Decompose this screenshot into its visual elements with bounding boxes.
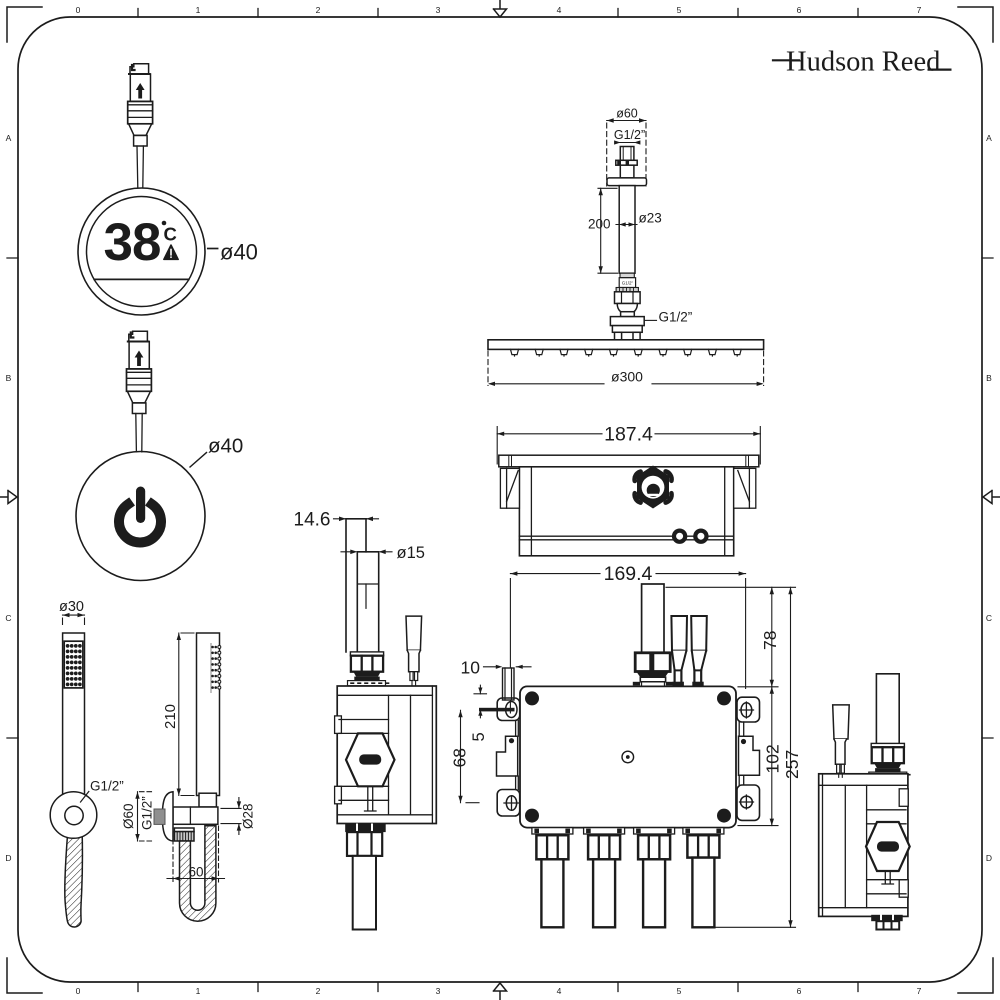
svg-text:C: C <box>986 613 992 623</box>
svg-text:G1/2”: G1/2” <box>614 128 645 142</box>
svg-text:G1/2": G1/2" <box>622 281 634 286</box>
svg-text:C: C <box>164 223 177 244</box>
svg-text:169.4: 169.4 <box>604 563 653 585</box>
svg-text:ø300: ø300 <box>611 369 643 385</box>
svg-text:78: 78 <box>760 631 780 650</box>
svg-text:102: 102 <box>763 744 783 773</box>
svg-text:B: B <box>986 373 992 383</box>
svg-text:200: 200 <box>588 217 611 232</box>
svg-text:5: 5 <box>677 986 682 996</box>
svg-text:257: 257 <box>782 750 802 779</box>
svg-text:G1/2”: G1/2” <box>140 796 155 830</box>
svg-text:5: 5 <box>677 5 682 15</box>
svg-text:68: 68 <box>450 748 470 767</box>
svg-text:ø15: ø15 <box>397 544 425 562</box>
svg-text:7: 7 <box>917 986 922 996</box>
svg-text:2: 2 <box>316 5 321 15</box>
svg-text:B: B <box>6 373 12 383</box>
svg-text:6: 6 <box>797 5 802 15</box>
svg-text:4: 4 <box>557 5 562 15</box>
svg-text:14.6: 14.6 <box>294 510 331 531</box>
svg-text:0: 0 <box>76 986 81 996</box>
svg-text:ø40: ø40 <box>220 240 258 265</box>
svg-text:3: 3 <box>436 5 441 15</box>
svg-text:ø60: ø60 <box>616 107 638 121</box>
svg-text:60: 60 <box>188 865 203 880</box>
svg-text:Ø28: Ø28 <box>241 803 256 829</box>
svg-text:1: 1 <box>196 5 201 15</box>
svg-text:10: 10 <box>461 658 481 678</box>
svg-text:210: 210 <box>162 704 179 729</box>
svg-text:6: 6 <box>797 986 802 996</box>
svg-text:G1/2”: G1/2” <box>659 310 693 325</box>
svg-text:ø23: ø23 <box>639 211 662 226</box>
svg-text:ø30: ø30 <box>59 599 84 615</box>
svg-text:ø40: ø40 <box>208 435 243 458</box>
svg-text:38: 38 <box>104 213 161 272</box>
svg-text:A: A <box>6 133 12 143</box>
svg-text:D: D <box>5 853 11 863</box>
svg-text:2: 2 <box>316 986 321 996</box>
svg-text:Hudson Reed: Hudson Reed <box>786 47 940 78</box>
svg-text:3: 3 <box>436 986 441 996</box>
svg-text:C: C <box>5 613 11 623</box>
svg-text:A: A <box>986 133 992 143</box>
svg-text:0: 0 <box>76 5 81 15</box>
svg-text:5: 5 <box>470 732 488 741</box>
svg-text:D: D <box>986 853 992 863</box>
svg-text:1: 1 <box>196 986 201 996</box>
svg-text:G1/2”: G1/2” <box>90 779 124 794</box>
svg-text:187.4: 187.4 <box>604 424 653 446</box>
svg-text:4: 4 <box>557 986 562 996</box>
svg-text:7: 7 <box>917 5 922 15</box>
svg-text:Ø60: Ø60 <box>121 803 136 829</box>
